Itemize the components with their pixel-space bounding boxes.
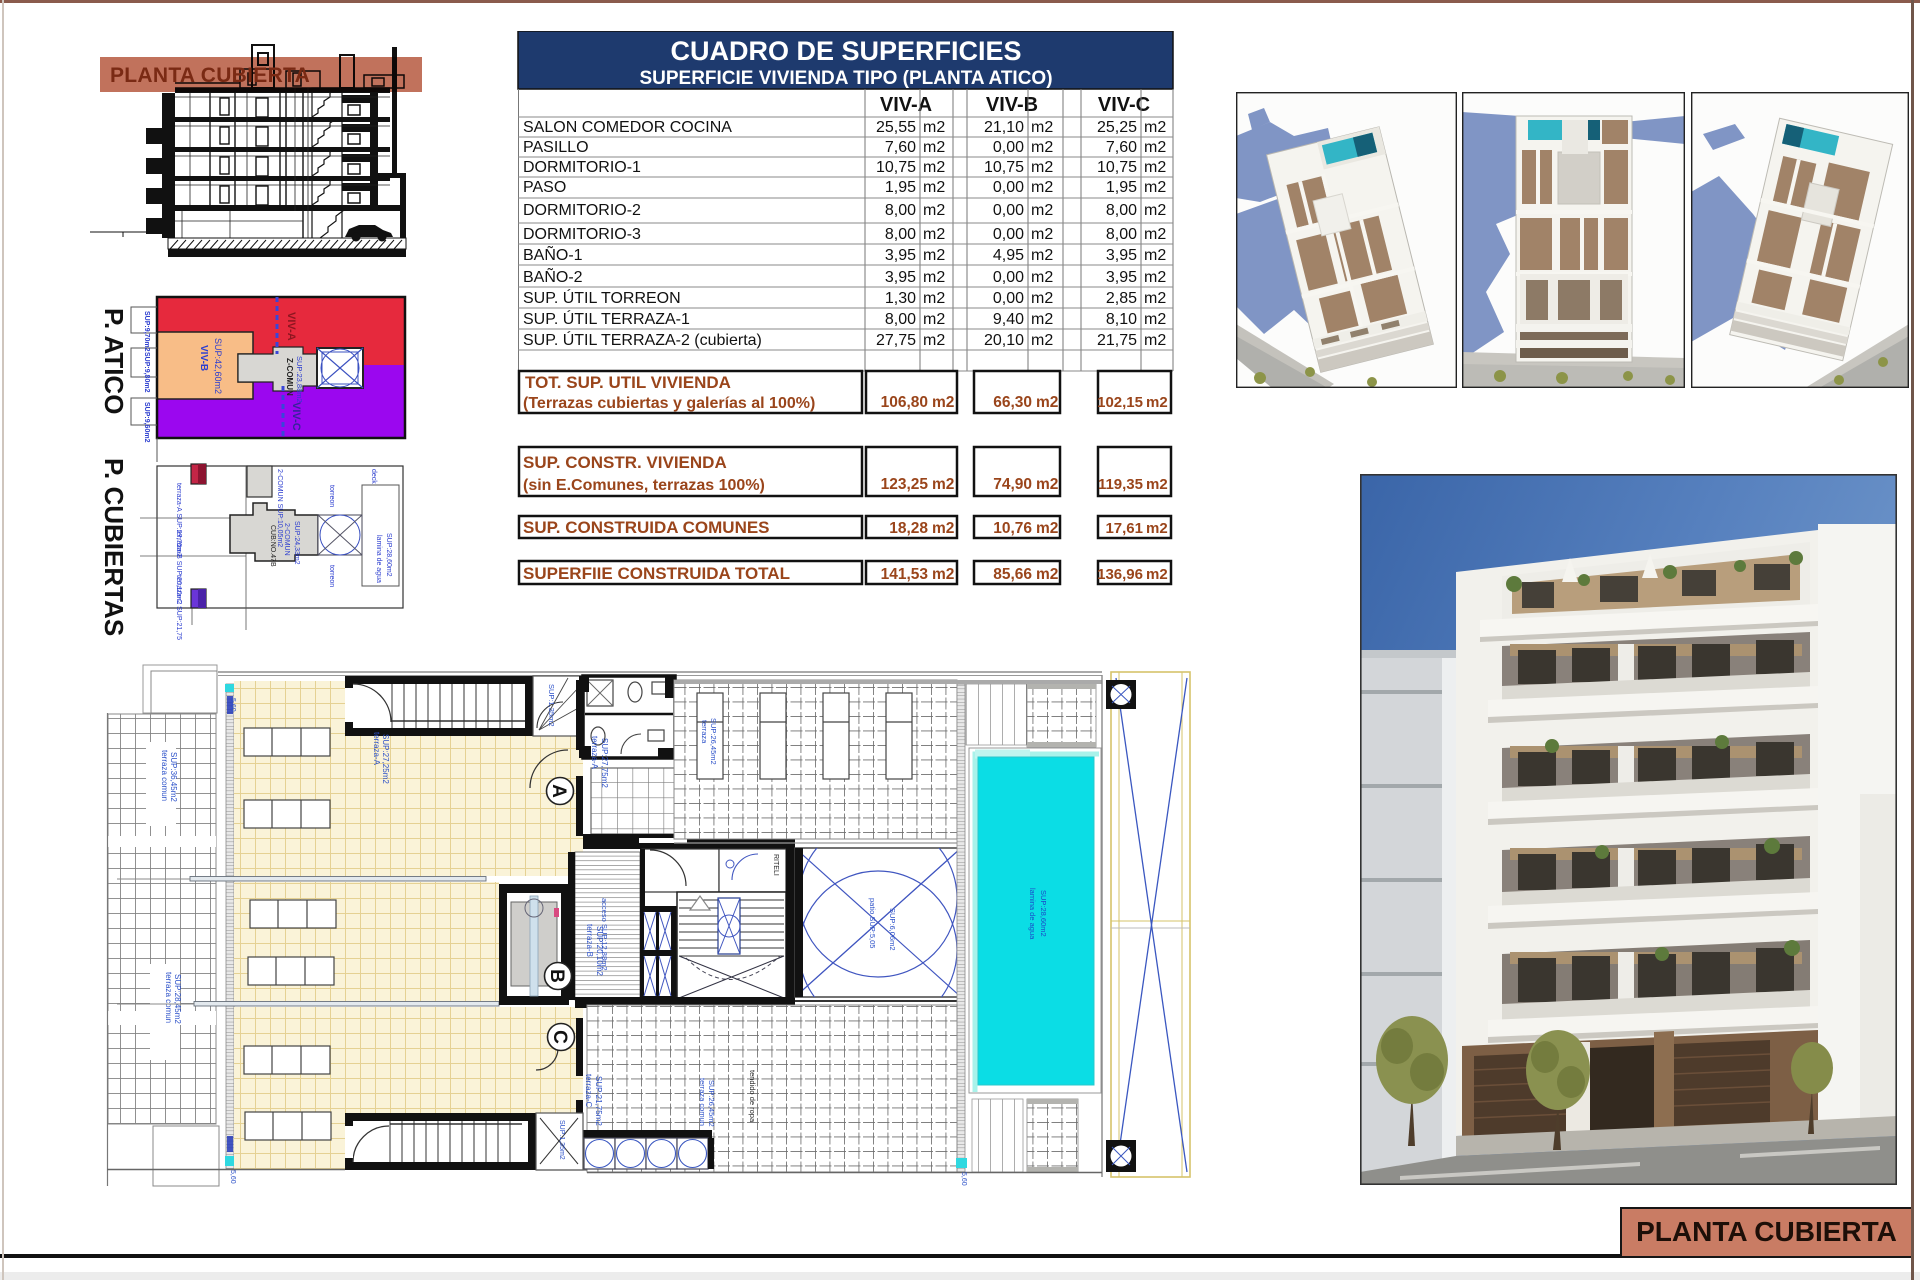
svg-text:21,75: 21,75 (1097, 332, 1137, 349)
svg-text:123,25: 123,25 (881, 476, 929, 493)
svg-text:3,95: 3,95 (885, 247, 916, 264)
svg-text:20,10: 20,10 (984, 332, 1024, 349)
svg-text:DORMITORIO-1: DORMITORIO-1 (523, 159, 641, 176)
svg-text:SUP:26,45m2: SUP:26,45m2 (709, 718, 718, 765)
svg-text:patio SUP:5,05: patio SUP:5,05 (868, 898, 877, 948)
svg-text:SUP:1,35m2: SUP:1,35m2 (558, 1120, 565, 1160)
svg-text:SUP. CONSTRUIDA COMUNES: SUP. CONSTRUIDA COMUNES (523, 518, 770, 537)
svg-text:10,75: 10,75 (876, 159, 916, 176)
svg-text:m2: m2 (1036, 476, 1058, 493)
svg-text:m2: m2 (1031, 159, 1053, 176)
svg-text:C: C (549, 1030, 570, 1044)
svg-text:terraza-A: terraza-A (590, 736, 599, 770)
svg-text:m2: m2 (923, 269, 945, 286)
svg-text:tendido de ropa: tendido de ropa (748, 1070, 757, 1123)
svg-text:SUP:28,45m2: SUP:28,45m2 (173, 974, 182, 1024)
svg-text:8,00: 8,00 (885, 311, 916, 328)
svg-text:deck: deck (370, 469, 377, 484)
svg-text:m2: m2 (1146, 566, 1168, 583)
svg-text:106,80: 106,80 (881, 394, 928, 411)
svg-text:SUP:20,10m2: SUP:20,10m2 (595, 926, 604, 976)
svg-text:SUPERFICIE VIVIENDA TIPO (PLA: SUPERFICIE VIVIENDA TIPO (PLANTA ATICO) (639, 68, 1052, 89)
svg-text:5,60: 5,60 (229, 698, 236, 712)
svg-text:VIV-B: VIV-B (198, 345, 209, 371)
svg-text:10,75: 10,75 (1097, 159, 1137, 176)
svg-text:SUP. ÚTIL TERRAZA-2 (cubierta): SUP. ÚTIL TERRAZA-2 (cubierta) (523, 330, 762, 349)
svg-text:2-COMUN SUP:10,05m2: 2-COMUN SUP:10,05m2 (276, 469, 283, 547)
svg-text:3,95: 3,95 (1106, 247, 1137, 264)
svg-text:VIV-C: VIV-C (290, 402, 302, 431)
svg-text:7,60: 7,60 (885, 139, 916, 156)
svg-text:0,00: 0,00 (993, 139, 1024, 156)
svg-text:m2: m2 (1144, 247, 1166, 264)
svg-text:m2: m2 (1144, 311, 1166, 328)
svg-text:m2: m2 (923, 119, 945, 136)
svg-text:m2: m2 (1031, 247, 1053, 264)
svg-text:A: A (548, 784, 569, 798)
svg-text:m2: m2 (1031, 202, 1053, 219)
svg-text:5,60: 5,60 (229, 1170, 236, 1184)
svg-text:5,60: 5,60 (960, 1172, 967, 1186)
svg-text:0,00: 0,00 (993, 290, 1024, 307)
svg-text:VIV-A: VIV-A (285, 312, 297, 341)
svg-text:25,55: 25,55 (876, 119, 916, 136)
svg-text:SUP:28,60m2: SUP:28,60m2 (1039, 890, 1048, 937)
svg-text:SUP:27,75m2: SUP:27,75m2 (600, 738, 609, 788)
svg-text:8,00: 8,00 (885, 202, 916, 219)
svg-text:BAÑO-2: BAÑO-2 (523, 266, 583, 286)
svg-text:terraza-C SUP:21,75m2: terraza-C SUP:21,75m2 (175, 575, 182, 640)
svg-text:m2: m2 (1031, 226, 1053, 243)
svg-text:m2: m2 (1144, 179, 1166, 196)
svg-text:m2: m2 (1144, 269, 1166, 286)
svg-text:SUPERFIIE CONSTRUIDA TOTAL: SUPERFIIE CONSTRUIDA TOTAL (523, 564, 790, 583)
svg-text:2-COMUN: 2-COMUN (283, 523, 290, 556)
svg-text:m2: m2 (932, 520, 954, 537)
svg-text:m2: m2 (1144, 159, 1166, 176)
svg-text:m2: m2 (923, 139, 945, 156)
svg-text:m2: m2 (1036, 394, 1058, 411)
svg-text:m2: m2 (1144, 290, 1166, 307)
svg-text:SUP:9,60m2: SUP:9,60m2 (143, 402, 150, 443)
svg-text:terraza-B: terraza-B (585, 924, 594, 957)
svg-text:CUADRO DE SUPERFICIES: CUADRO DE SUPERFICIES (670, 36, 1021, 66)
svg-text:8,00: 8,00 (1106, 226, 1137, 243)
svg-text:TOT. SUP. UTIL VIVIENDA: TOT. SUP. UTIL VIVIENDA (525, 373, 731, 392)
svg-text:terraza-A: terraza-A (372, 732, 381, 766)
svg-text:SUP:9,80m2: SUP:9,80m2 (143, 352, 150, 393)
svg-text:0,00: 0,00 (993, 226, 1024, 243)
svg-text:SUP:24,33m2: SUP:24,33m2 (293, 521, 300, 565)
svg-text:m2: m2 (923, 311, 945, 328)
svg-text:m2: m2 (1031, 269, 1053, 286)
svg-text:SUP:6,06m2: SUP:6,06m2 (888, 908, 897, 951)
svg-text:m2: m2 (923, 247, 945, 264)
svg-text:m2: m2 (923, 202, 945, 219)
svg-text:BAÑO-1: BAÑO-1 (523, 244, 583, 264)
svg-text:102,15: 102,15 (1097, 394, 1143, 411)
svg-text:m2: m2 (932, 566, 954, 583)
svg-text:1,95: 1,95 (1106, 179, 1137, 196)
svg-text:9,40: 9,40 (993, 311, 1024, 328)
svg-text:SUP:23,88m2: SUP:23,88m2 (295, 356, 304, 403)
svg-text:1,30: 1,30 (885, 290, 916, 307)
svg-text:terraza comun: terraza comun (164, 972, 173, 1023)
svg-text:VIV-A: VIV-A (880, 94, 932, 116)
svg-text:SUP:28,60m2: SUP:28,60m2 (385, 533, 392, 577)
svg-text:m2: m2 (1036, 520, 1058, 537)
svg-text:m2: m2 (1144, 202, 1166, 219)
svg-text:2,85: 2,85 (1106, 290, 1137, 307)
svg-text:Z-COMUN: Z-COMUN (285, 358, 294, 396)
svg-text:terraza: terraza (700, 720, 709, 744)
svg-text:21,10: 21,10 (984, 119, 1024, 136)
svg-text:SUP. ÚTIL TERRAZA-1: SUP. ÚTIL TERRAZA-1 (523, 309, 690, 328)
svg-text:VIV-B: VIV-B (986, 94, 1038, 116)
svg-text:4,95: 4,95 (993, 247, 1024, 264)
svg-text:SUP:27,25m2: SUP:27,25m2 (381, 734, 390, 784)
svg-text:m2: m2 (1031, 179, 1053, 196)
svg-text:3,95: 3,95 (1106, 269, 1137, 286)
svg-text:PASILLO: PASILLO (523, 139, 589, 156)
svg-text:terraza-C: terraza-C (584, 1074, 593, 1108)
svg-text:terraza comun: terraza comun (160, 750, 169, 801)
svg-text:SUP:1,35m2: SUP:1,35m2 (547, 684, 556, 727)
svg-text:m2: m2 (923, 179, 945, 196)
svg-text:0,00: 0,00 (993, 179, 1024, 196)
svg-text:DORMITORIO-3: DORMITORIO-3 (523, 226, 641, 243)
svg-text:DORMITORIO-2: DORMITORIO-2 (523, 202, 641, 219)
svg-text:terraza comun: terraza comun (698, 1078, 707, 1126)
svg-text:18,28: 18,28 (889, 520, 928, 537)
svg-text:m2: m2 (1146, 394, 1168, 411)
svg-text:m2: m2 (923, 159, 945, 176)
svg-text:m2: m2 (1144, 139, 1166, 156)
svg-text:SUP:26,45m2: SUP:26,45m2 (707, 1080, 716, 1127)
svg-text:m2: m2 (923, 290, 945, 307)
svg-text:m2: m2 (1144, 119, 1166, 136)
svg-text:m2: m2 (1031, 119, 1053, 136)
svg-text:SUP. ÚTIL TORREON: SUP. ÚTIL TORREON (523, 288, 681, 307)
svg-text:8,10: 8,10 (1106, 311, 1137, 328)
svg-text:SUP:36,45m2: SUP:36,45m2 (169, 752, 178, 802)
svg-text:m2: m2 (923, 332, 945, 349)
svg-text:SUP:42,60m2: SUP:42,60m2 (213, 338, 223, 394)
svg-text:m2: m2 (1031, 332, 1053, 349)
svg-text:m2: m2 (1146, 520, 1168, 537)
svg-text:74,90: 74,90 (993, 476, 1032, 493)
svg-text:25,25: 25,25 (1097, 119, 1137, 136)
svg-text:m2: m2 (1031, 139, 1053, 156)
svg-text:141,53: 141,53 (881, 566, 929, 583)
svg-text:lamina de agua: lamina de agua (375, 535, 382, 583)
svg-text:m2: m2 (923, 226, 945, 243)
svg-text:7,60: 7,60 (1106, 139, 1137, 156)
svg-text:CUB:NO.47B: CUB:NO.47B (269, 525, 276, 567)
svg-text:10,75: 10,75 (984, 159, 1024, 176)
svg-text:m2: m2 (1031, 311, 1053, 328)
svg-text:66,30: 66,30 (993, 394, 1032, 411)
svg-text:119,35: 119,35 (1098, 476, 1143, 493)
svg-text:(sin E.Comunes, terrazas 100%): (sin E.Comunes, terrazas 100%) (523, 477, 765, 494)
svg-text:RITELI: RITELI (772, 854, 779, 876)
svg-text:m2: m2 (1144, 332, 1166, 349)
svg-text:torreon: torreon (328, 565, 335, 587)
svg-text:(Terrazas cubiertas y galerías: (Terrazas cubiertas y galerías al 100%) (523, 395, 815, 412)
svg-text:m2: m2 (1031, 290, 1053, 307)
svg-text:m2: m2 (1144, 226, 1166, 243)
svg-text:PASO: PASO (523, 179, 566, 196)
svg-text:VIV-C: VIV-C (1098, 94, 1150, 116)
svg-text:10,76: 10,76 (993, 520, 1032, 537)
svg-text:17,61: 17,61 (1105, 520, 1143, 537)
svg-text:136,96: 136,96 (1097, 566, 1143, 583)
svg-text:lamina de agua: lamina de agua (1028, 888, 1037, 940)
svg-text:m2: m2 (1036, 566, 1058, 583)
svg-text:0,00: 0,00 (993, 269, 1024, 286)
svg-text:torreon: torreon (328, 485, 335, 507)
svg-text:27,75: 27,75 (876, 332, 916, 349)
svg-text:1,95: 1,95 (885, 179, 916, 196)
svg-text:3,95: 3,95 (885, 269, 916, 286)
svg-text:SUP. CONSTR. VIVIENDA: SUP. CONSTR. VIVIENDA (523, 453, 727, 472)
svg-text:0,00: 0,00 (993, 202, 1024, 219)
svg-text:SUP:9,70m2: SUP:9,70m2 (143, 311, 150, 352)
svg-text:B: B (546, 969, 567, 983)
svg-text:SUP:21,75m2: SUP:21,75m2 (594, 1076, 603, 1126)
svg-text:m2: m2 (1146, 476, 1168, 493)
svg-text:m2: m2 (932, 394, 954, 411)
svg-text:8,00: 8,00 (885, 226, 916, 243)
svg-text:8,00: 8,00 (1106, 202, 1137, 219)
svg-text:m2: m2 (932, 476, 954, 493)
svg-text:85,66: 85,66 (993, 566, 1032, 583)
svg-text:SALON COMEDOR COCINA: SALON COMEDOR COCINA (523, 119, 732, 136)
